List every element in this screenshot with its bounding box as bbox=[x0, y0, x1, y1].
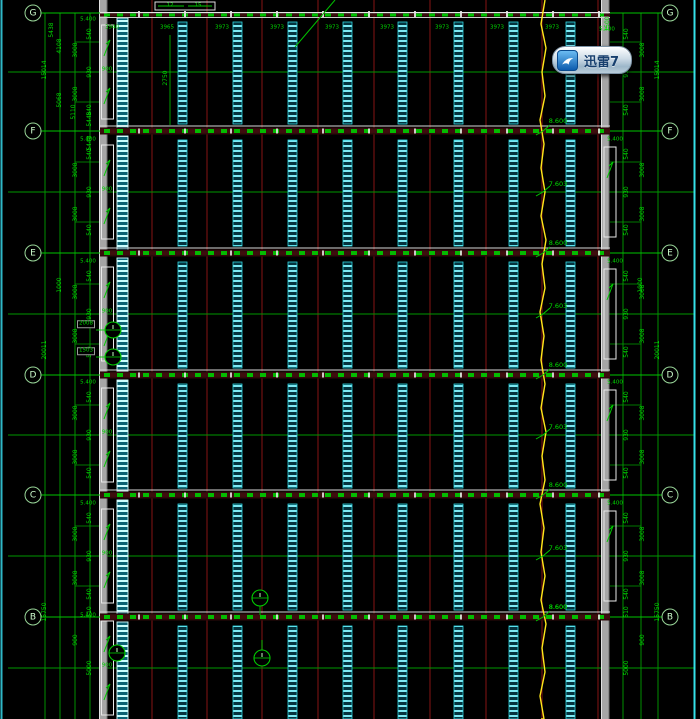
column-hatch-bar bbox=[178, 22, 187, 124]
column-hatch-bar bbox=[178, 384, 187, 488]
dim-text: 540 bbox=[87, 270, 93, 281]
beam-ticks bbox=[100, 615, 610, 620]
dim-text: 540 bbox=[87, 28, 93, 39]
total-dim-text: 15014 bbox=[655, 60, 661, 79]
column-hatch-bar bbox=[288, 504, 297, 610]
column-hatch-bar bbox=[398, 626, 407, 719]
column-hatch-bar bbox=[343, 504, 352, 610]
level-text-low: 7.603 bbox=[549, 181, 568, 188]
level-text-high: 8.600 bbox=[549, 362, 568, 369]
column-hatch-bar bbox=[566, 626, 575, 719]
beam-ticks bbox=[100, 129, 610, 134]
top-dim-text: 3973 bbox=[380, 25, 394, 31]
level-text-low: 7.603 bbox=[549, 424, 568, 431]
top-dim-text: 3973 bbox=[435, 25, 449, 31]
wall-level-label: 5.400 bbox=[80, 501, 96, 507]
dim-text: 930 bbox=[624, 186, 630, 197]
column-hatch-bar bbox=[288, 140, 297, 246]
top-dim-text: 3940 bbox=[105, 25, 119, 31]
dim-text: 540 bbox=[624, 346, 630, 357]
column-hatch-bar bbox=[288, 22, 297, 124]
dim-text: 540 bbox=[624, 467, 630, 478]
top-dim-line bbox=[100, 17, 610, 18]
grid-bubble-left: F bbox=[25, 123, 42, 140]
dim-text: 3008 bbox=[640, 328, 646, 343]
column-hatch-bar bbox=[343, 140, 352, 246]
dim-text: 540 bbox=[624, 588, 630, 599]
column-hatch-bar bbox=[398, 140, 407, 246]
boxed-label: 2008 bbox=[77, 320, 95, 328]
column-hatch-bar bbox=[398, 504, 407, 610]
column-hatch-bar bbox=[509, 504, 518, 610]
column-hatch-bar-bright bbox=[117, 136, 128, 250]
beam-edge-line bbox=[100, 248, 610, 249]
level-text-high: 8.600 bbox=[549, 118, 568, 125]
dim-text: 5000 bbox=[624, 660, 630, 675]
wall-level-label: 5.400 bbox=[80, 259, 96, 265]
level-text-high: 8.600 bbox=[549, 604, 568, 611]
dim-text: 1000 bbox=[638, 277, 644, 292]
grid-bubble-left: B bbox=[25, 609, 42, 626]
column-hatch-bar bbox=[398, 262, 407, 368]
dim-text: 540 bbox=[624, 391, 630, 402]
boxed-label: 1503 bbox=[77, 347, 95, 355]
dim-text: 3008 bbox=[73, 328, 79, 343]
grid-bubble-left: C bbox=[25, 487, 42, 504]
total-dim-text: 15750 bbox=[655, 602, 661, 621]
dim-text: 900 bbox=[640, 634, 646, 645]
cad-linework bbox=[0, 0, 700, 719]
cad-drawing-canvas: 3940396539733973397339733973397339738.60… bbox=[0, 0, 700, 719]
column-hatch-bar bbox=[509, 140, 518, 246]
opening-width-label: 900 bbox=[102, 551, 113, 557]
column-hatch-bar bbox=[566, 384, 575, 488]
column-hatch-bar bbox=[233, 262, 242, 368]
top-dim-text: 3973 bbox=[325, 25, 339, 31]
column-hatch-bar bbox=[288, 384, 297, 488]
dim-text: 1000 bbox=[57, 277, 63, 292]
dim-text: 1500 bbox=[605, 16, 611, 31]
grid-bubble-right: D bbox=[662, 367, 679, 384]
dim-text: 540 bbox=[624, 270, 630, 281]
dim-text: 3008 bbox=[640, 449, 646, 464]
top-dim-text: 3965 bbox=[160, 25, 174, 31]
grid-bubble-right: G bbox=[662, 5, 679, 22]
dim-text: 2750 bbox=[163, 70, 169, 85]
dim-text: 540 bbox=[87, 467, 93, 478]
total-dim-text: 20011 bbox=[42, 340, 48, 359]
column-hatch-bar bbox=[233, 504, 242, 610]
wall-level-label: 5.400 bbox=[607, 137, 623, 143]
top-dim-text: 3973 bbox=[490, 25, 504, 31]
column-hatch-bar bbox=[454, 626, 463, 719]
roof-break-line bbox=[540, 0, 546, 719]
top-dim-text: 3973 bbox=[545, 25, 559, 31]
dim-text: 3008 bbox=[73, 162, 79, 177]
total-dim-text: 15750 bbox=[42, 602, 48, 621]
dim-text: 5110 bbox=[71, 104, 77, 119]
grid-bubble-left: D bbox=[25, 367, 42, 384]
level-text-low: 7.603 bbox=[549, 303, 568, 310]
dim-text: 5448 bbox=[87, 135, 93, 150]
column-hatch-bar bbox=[178, 504, 187, 610]
dim-text: 540 bbox=[624, 104, 630, 115]
dim-text: 5438 bbox=[49, 22, 55, 37]
dim-text: 3008 bbox=[73, 570, 79, 585]
column-hatch-bar-bright bbox=[117, 18, 128, 128]
dim-text: 3008 bbox=[73, 526, 79, 541]
wall-level-label: 5.400 bbox=[80, 380, 96, 386]
dim-text: 930 bbox=[87, 186, 93, 197]
opening-width-label: 900 bbox=[102, 309, 113, 315]
top-dim-text: 3973 bbox=[270, 25, 284, 31]
beam-ticks bbox=[100, 493, 610, 498]
dim-text: 540 bbox=[87, 588, 93, 599]
dim-text: 5000 bbox=[87, 660, 93, 675]
grid-bubble-left: G bbox=[25, 5, 42, 22]
dim-text: 930 bbox=[87, 550, 93, 561]
column-hatch-bar bbox=[454, 504, 463, 610]
column-hatch-bar bbox=[398, 22, 407, 124]
xunlei-watermark-badge: 迅雷7 bbox=[552, 46, 632, 74]
dim-text: 3008 bbox=[640, 42, 646, 57]
wall-level-label: 5.400 bbox=[80, 17, 96, 23]
top-dim-ticks bbox=[100, 11, 610, 17]
level-text-high: 8.600 bbox=[549, 240, 568, 247]
column-hatch-bar bbox=[454, 384, 463, 488]
grid-bubble-right: F bbox=[662, 123, 679, 140]
grid-bubble-right: E bbox=[662, 245, 679, 262]
column-hatch-bar bbox=[566, 262, 575, 368]
column-hatch-bar bbox=[288, 626, 297, 719]
dim-text: 3008 bbox=[640, 405, 646, 420]
dim-text: 3008 bbox=[640, 86, 646, 101]
dim-text: 510 bbox=[87, 606, 93, 617]
column-hatch-bar bbox=[566, 140, 575, 246]
dim-text: 3008 bbox=[640, 570, 646, 585]
wall-level-label: 5.400 bbox=[607, 380, 623, 386]
opening-width-label: 900 bbox=[102, 187, 113, 193]
total-dim-text: 15014 bbox=[42, 60, 48, 79]
column-hatch-bar-bright bbox=[117, 622, 128, 719]
column-hatch-bar bbox=[509, 384, 518, 488]
grid-bubble-right: C bbox=[662, 487, 679, 504]
dim-text: 510 bbox=[624, 606, 630, 617]
dim-text: 3008 bbox=[640, 162, 646, 177]
column-hatch-bar-bright bbox=[117, 380, 128, 492]
column-hatch-bar bbox=[343, 22, 352, 124]
column-hatch-bar bbox=[454, 140, 463, 246]
column-hatch-bar bbox=[509, 262, 518, 368]
column-hatch-bar bbox=[454, 22, 463, 124]
dim-text: 540 bbox=[624, 148, 630, 159]
column-hatch-bar bbox=[454, 262, 463, 368]
column-hatch-bar bbox=[233, 626, 242, 719]
beam-edge-line bbox=[100, 126, 610, 127]
opening-width-label: 900 bbox=[102, 663, 113, 669]
column-hatch-bar bbox=[233, 22, 242, 124]
dim-text: 3008 bbox=[640, 526, 646, 541]
dim-text: 540 bbox=[624, 512, 630, 523]
beam-edge-line bbox=[100, 612, 610, 613]
column-hatch-bar bbox=[178, 262, 187, 368]
dim-text: 540 bbox=[624, 28, 630, 39]
dim-text: 3008 bbox=[73, 284, 79, 299]
column-hatch-bar bbox=[343, 626, 352, 719]
dim-text: 3008 bbox=[73, 206, 79, 221]
dim-text: 930 bbox=[87, 66, 93, 77]
top-detail-label: 15 bbox=[195, 3, 202, 9]
xunlei-bird-icon bbox=[557, 50, 578, 71]
opening-width-label: 900 bbox=[102, 430, 113, 436]
dim-text: 930 bbox=[624, 550, 630, 561]
column-hatch-bar bbox=[343, 262, 352, 368]
grid-bubble-right: B bbox=[662, 609, 679, 626]
beam-ticks bbox=[100, 373, 610, 378]
dim-text: 540 bbox=[87, 224, 93, 235]
beam-ticks bbox=[100, 251, 610, 256]
column-hatch-bar bbox=[509, 626, 518, 719]
dim-text: 930 bbox=[624, 308, 630, 319]
watermark-label: 迅雷7 bbox=[584, 51, 619, 70]
dim-text: 3008 bbox=[73, 449, 79, 464]
column-hatch-bar bbox=[509, 22, 518, 124]
opening-width-label: 900 bbox=[102, 67, 113, 73]
beam-edge-line bbox=[100, 490, 610, 491]
top-detail-label: 12 bbox=[167, 3, 174, 9]
dim-text: 3008 bbox=[73, 42, 79, 57]
dim-text: 3008 bbox=[640, 206, 646, 221]
dim-text: 930 bbox=[624, 429, 630, 440]
dim-text: 3008 bbox=[73, 405, 79, 420]
wall-level-label: 5.400 bbox=[607, 259, 623, 265]
column-hatch-bar bbox=[178, 626, 187, 719]
dim-text: 930 bbox=[87, 308, 93, 319]
column-hatch-bar bbox=[178, 140, 187, 246]
dim-text: 5068 bbox=[57, 92, 63, 107]
dim-text: 540 bbox=[87, 512, 93, 523]
column-hatch-bar bbox=[233, 384, 242, 488]
dim-text: 540 bbox=[624, 224, 630, 235]
dim-text: 900 bbox=[73, 634, 79, 645]
level-text-low: 7.603 bbox=[549, 545, 568, 552]
column-hatch-bar bbox=[398, 384, 407, 488]
total-dim-text: 20011 bbox=[655, 340, 661, 359]
column-hatch-bar bbox=[233, 140, 242, 246]
dim-text: 930 bbox=[87, 429, 93, 440]
grid-bubble-left: E bbox=[25, 245, 42, 262]
column-hatch-bar-bright bbox=[117, 500, 128, 614]
column-hatch-bar bbox=[343, 384, 352, 488]
dim-text: 4108 bbox=[57, 38, 63, 53]
dim-text: 5448 bbox=[87, 111, 93, 126]
wall-level-label: 5.400 bbox=[607, 501, 623, 507]
level-text-high: 8.600 bbox=[549, 482, 568, 489]
column-hatch-bar bbox=[566, 504, 575, 610]
top-dim-text: 3973 bbox=[215, 25, 229, 31]
dim-text: 3008 bbox=[73, 86, 79, 101]
dim-text: 540 bbox=[87, 391, 93, 402]
beam-edge-line bbox=[100, 370, 610, 371]
column-hatch-bar bbox=[288, 262, 297, 368]
